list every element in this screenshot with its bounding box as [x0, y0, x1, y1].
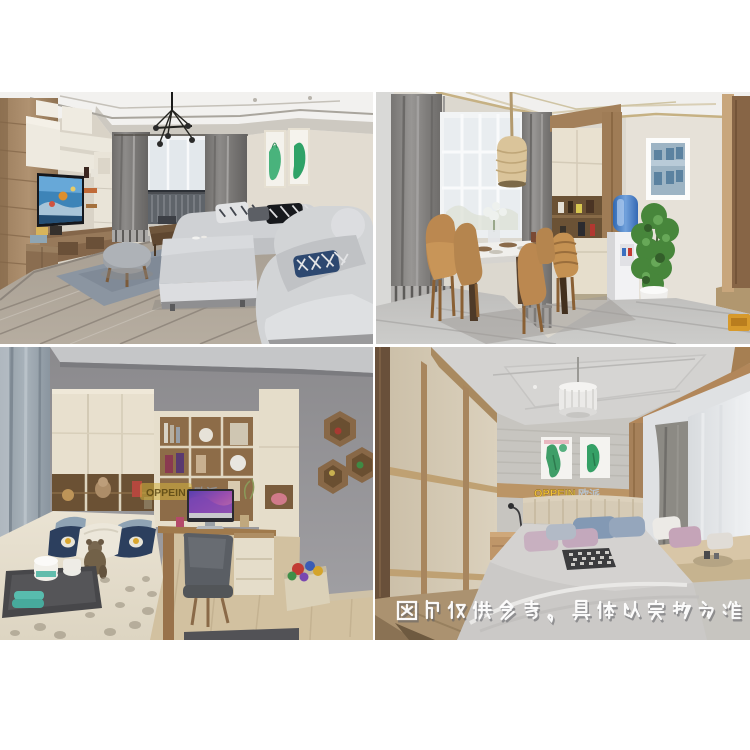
svg-text:OPPEIN: OPPEIN — [146, 487, 186, 499]
